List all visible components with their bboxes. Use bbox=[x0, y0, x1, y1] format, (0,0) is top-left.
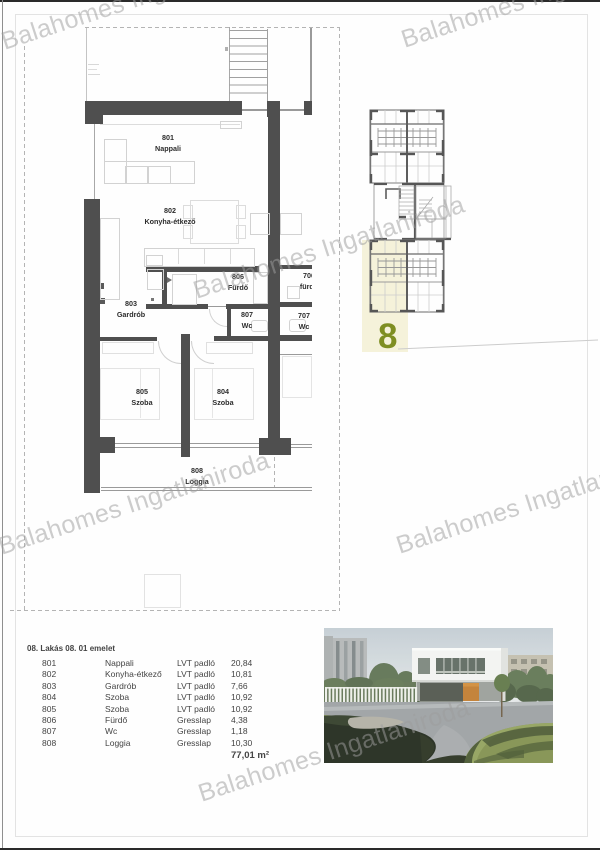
svg-text:8: 8 bbox=[378, 317, 397, 356]
